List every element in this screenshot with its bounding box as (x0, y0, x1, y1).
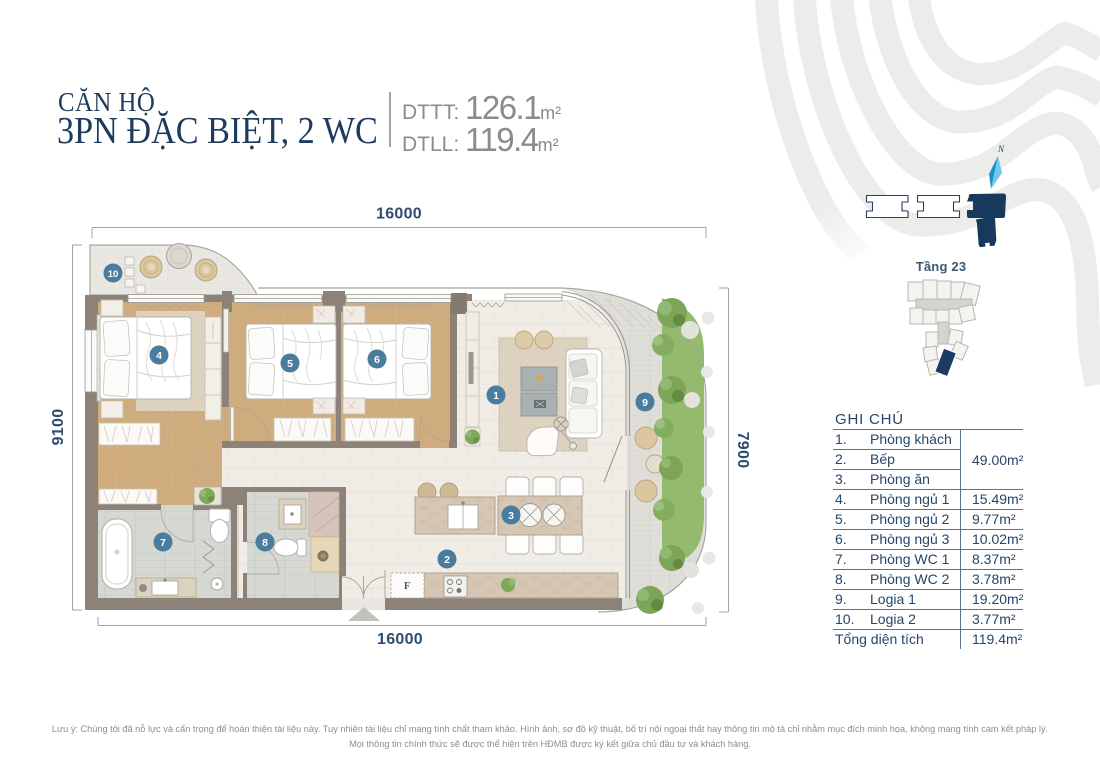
svg-text:7900: 7900 (734, 432, 751, 469)
svg-text:5: 5 (287, 358, 293, 370)
svg-text:8: 8 (262, 537, 268, 549)
svg-text:16000: 16000 (376, 206, 422, 223)
svg-text:9100: 9100 (50, 409, 67, 446)
svg-text:9: 9 (642, 397, 648, 409)
svg-text:7: 7 (160, 537, 166, 549)
svg-text:2: 2 (444, 554, 450, 566)
svg-text:6: 6 (374, 354, 380, 366)
svg-text:3: 3 (508, 510, 514, 522)
svg-text:Tầng 23: Tầng 23 (916, 259, 967, 274)
svg-text:10: 10 (108, 269, 119, 280)
svg-text:1: 1 (493, 390, 499, 402)
svg-text:F: F (404, 581, 410, 592)
svg-text:4: 4 (156, 350, 162, 362)
svg-text:N: N (997, 144, 1005, 154)
svg-text:16000: 16000 (377, 631, 423, 648)
